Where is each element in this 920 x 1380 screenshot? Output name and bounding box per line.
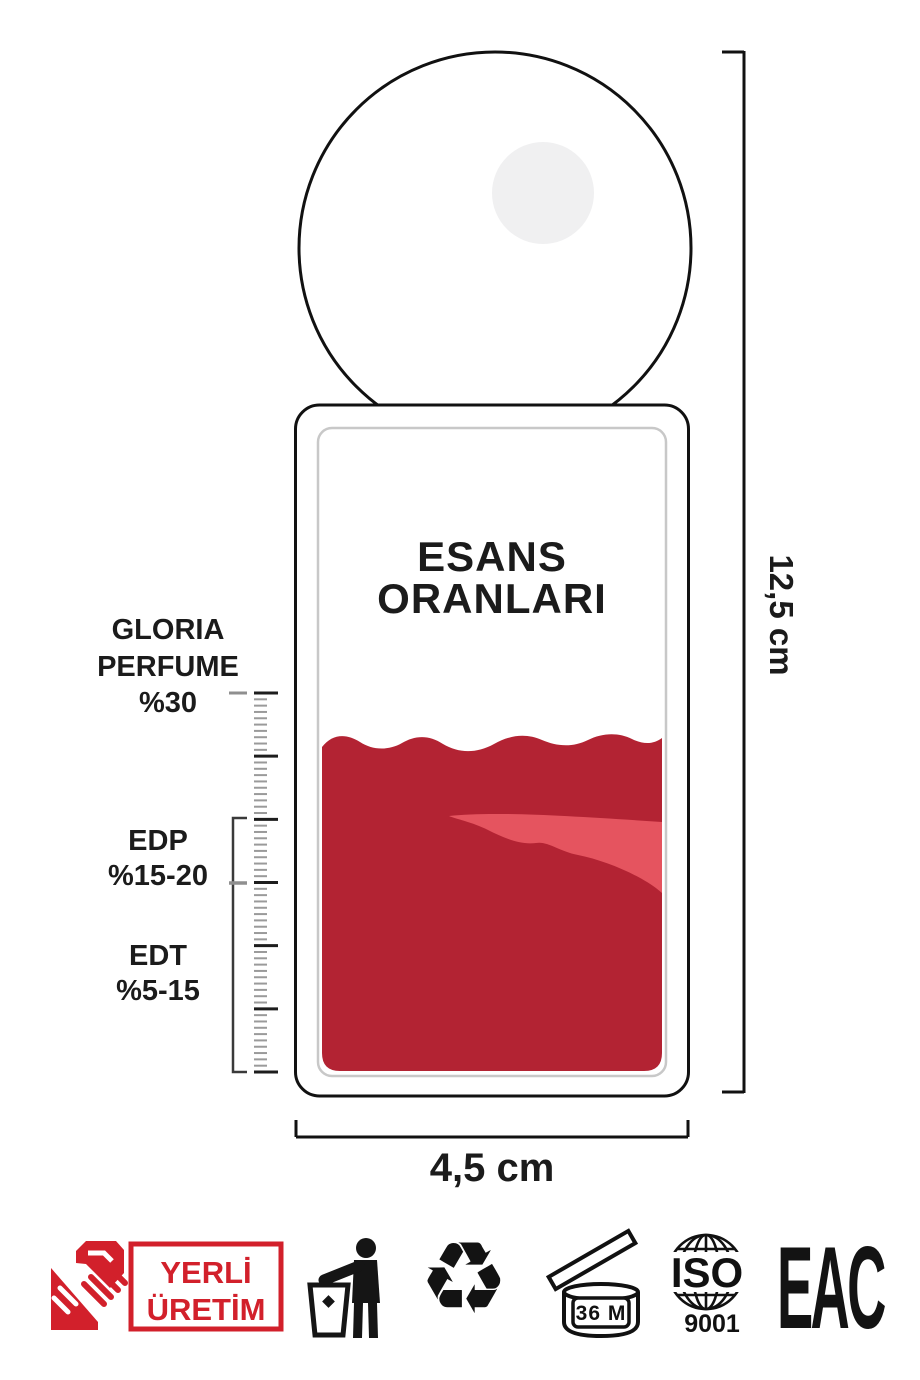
edp-line-1: EDP bbox=[60, 824, 256, 859]
bottle-title: ESANS ORANLARI bbox=[295, 536, 689, 620]
width-dimension-line bbox=[296, 1120, 688, 1137]
title-line-2: ORANLARI bbox=[295, 578, 689, 620]
edt-percentage: %5-15 bbox=[60, 974, 256, 1009]
handshake-icon bbox=[51, 1241, 125, 1330]
scale-label-gloria-perfume: GLORIA PERFUME %30 bbox=[60, 612, 276, 722]
yerli-label: YERLİ bbox=[160, 1255, 251, 1290]
recycle-icon: ♻ bbox=[408, 1226, 520, 1331]
bottle-cap-circle bbox=[299, 52, 691, 444]
width-dimension-label: 4,5 cm bbox=[295, 1146, 689, 1191]
edp-percentage: %15-20 bbox=[60, 859, 256, 894]
perfume-essence-infographic: YERLİ ÜRETİM 36 M bbox=[0, 0, 920, 1380]
iso-number: 9001 bbox=[684, 1310, 740, 1338]
ruler-scale bbox=[254, 693, 278, 1072]
gloria-line-2: PERFUME bbox=[60, 649, 276, 686]
height-dimension-line bbox=[722, 51, 744, 1093]
scale-label-edp: EDP %15-20 bbox=[60, 824, 256, 894]
pao-label: 36 M bbox=[576, 1302, 627, 1325]
title-line-1: ESANS bbox=[295, 536, 689, 578]
gloria-line-1: GLORIA bbox=[60, 612, 276, 649]
edt-line-1: EDT bbox=[60, 939, 256, 974]
gloria-percentage: %30 bbox=[60, 685, 276, 722]
iso-9001-icon: ISO 9001 bbox=[662, 1235, 754, 1338]
uretim-label: ÜRETİM bbox=[147, 1292, 266, 1327]
iso-label: ISO bbox=[671, 1249, 743, 1296]
yerli-uretim-badge: YERLİ ÜRETİM bbox=[51, 1241, 281, 1330]
eac-icon: EAC bbox=[777, 1224, 885, 1353]
height-dimension-label: 12,5 cm bbox=[762, 550, 800, 680]
scale-label-edt: EDT %5-15 bbox=[60, 939, 256, 1009]
tidyman-icon bbox=[310, 1238, 380, 1338]
pao-36m-icon: 36 M bbox=[549, 1231, 638, 1336]
liquid-fill bbox=[322, 734, 662, 1071]
cap-highlight-circle bbox=[492, 142, 594, 244]
